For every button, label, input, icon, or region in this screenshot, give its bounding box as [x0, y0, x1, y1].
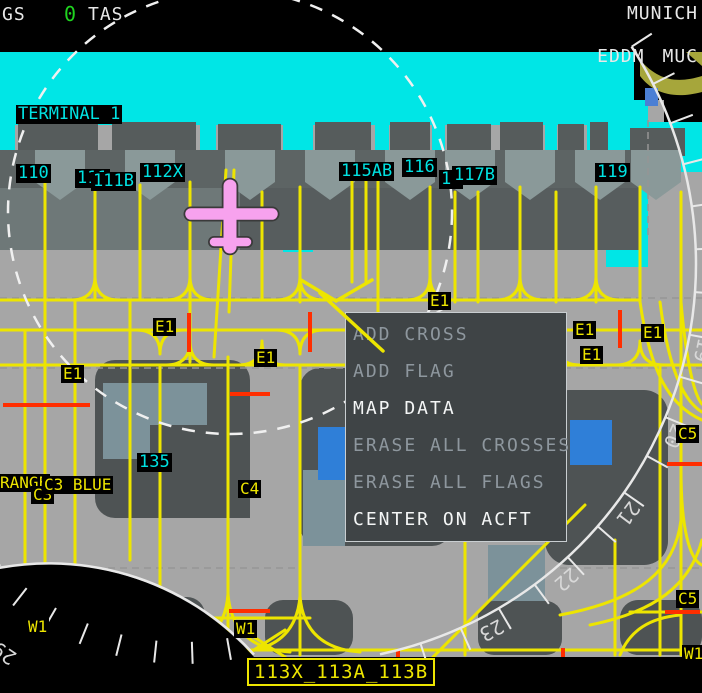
menu-item-add-flag: ADD FLAG: [353, 361, 566, 382]
menu-item-add-cross: ADD CROSS: [353, 324, 566, 345]
airport-codes: EDDMMUC: [532, 25, 698, 88]
tas-label: TAS: [88, 4, 124, 25]
airport-iata: MUC: [662, 46, 698, 67]
menu-item-erase-all-flags: ERASE ALL FLAGS: [353, 472, 566, 493]
context-menu: ADD CROSSADD FLAGMAP DATAERASE ALL CROSS…: [345, 312, 567, 542]
airport-name: MUNICH: [627, 3, 698, 24]
bottom-bar: [0, 657, 702, 693]
menu-item-center-on-acft[interactable]: CENTER ON ACFT: [353, 509, 566, 530]
menu-item-erase-all-crosses: ERASE ALL CROSSES: [353, 435, 566, 456]
gs-value: 0: [64, 2, 77, 26]
airport-icao: EDDM: [597, 46, 644, 67]
gs-label: GS: [2, 4, 26, 25]
nd-display: 29 1920212223 GS 0 TAS MUNICH EDDMMUC TE…: [0, 0, 702, 693]
menu-item-map-data[interactable]: MAP DATA: [353, 398, 566, 419]
